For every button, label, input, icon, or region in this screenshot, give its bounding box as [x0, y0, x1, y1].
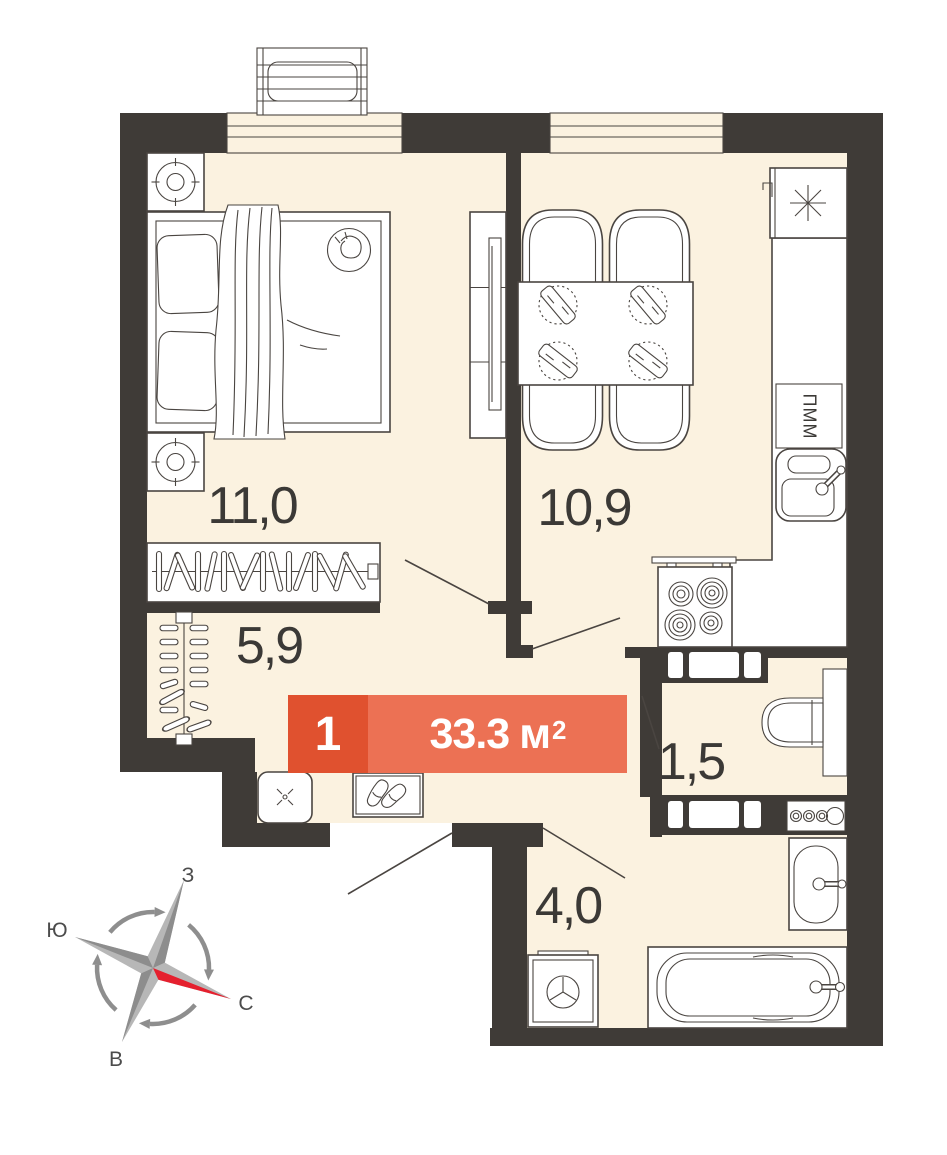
area-sup: 2	[552, 715, 565, 746]
washing-machine	[787, 801, 845, 831]
cat	[328, 229, 371, 272]
compass-rose	[75, 880, 231, 1042]
bathtub	[648, 947, 847, 1028]
stove	[652, 557, 736, 647]
total-area: 33.3 м 2	[368, 695, 627, 773]
stool	[258, 772, 312, 823]
area-value: 33.3	[430, 710, 510, 759]
room-label-wc: 1,5	[658, 732, 724, 792]
nightstand-bottom	[147, 433, 204, 491]
rooms-count: 1	[288, 695, 368, 773]
kitchen-sink	[776, 449, 846, 521]
ac-unit	[257, 48, 367, 115]
bed	[147, 205, 390, 439]
floor-plan-drawing	[0, 0, 947, 1155]
compass-label-right: С	[238, 992, 253, 1016]
compass-label-bottom: В	[109, 1048, 123, 1072]
wardrobe	[147, 543, 380, 602]
tv-unit	[470, 212, 506, 438]
shoe-shelf	[353, 773, 423, 817]
window-kitchen	[550, 113, 723, 153]
water-heater	[528, 951, 598, 1027]
dishwasher-label: ПММ	[776, 384, 842, 448]
compass-label-left: Ю	[46, 919, 67, 943]
wc-door-top	[662, 647, 768, 683]
area-unit: м	[519, 710, 550, 759]
room-label-bath: 4,0	[535, 876, 601, 936]
room-label-living: 11,0	[207, 476, 296, 536]
window-bedroom	[227, 113, 402, 153]
floor-plan-page: 11,0 10,9 5,9 1,5 4,0 ПММ 1 33.3 м 2 З Ю…	[0, 0, 947, 1155]
room-label-hall: 5,9	[236, 616, 302, 676]
bathroom-sink	[789, 838, 847, 930]
nightstand-top	[147, 153, 204, 211]
room-label-kitchen: 10,9	[537, 478, 630, 538]
area-badge: 1 33.3 м 2	[288, 695, 627, 773]
fridge	[763, 168, 847, 238]
compass-label-top: З	[182, 864, 195, 888]
